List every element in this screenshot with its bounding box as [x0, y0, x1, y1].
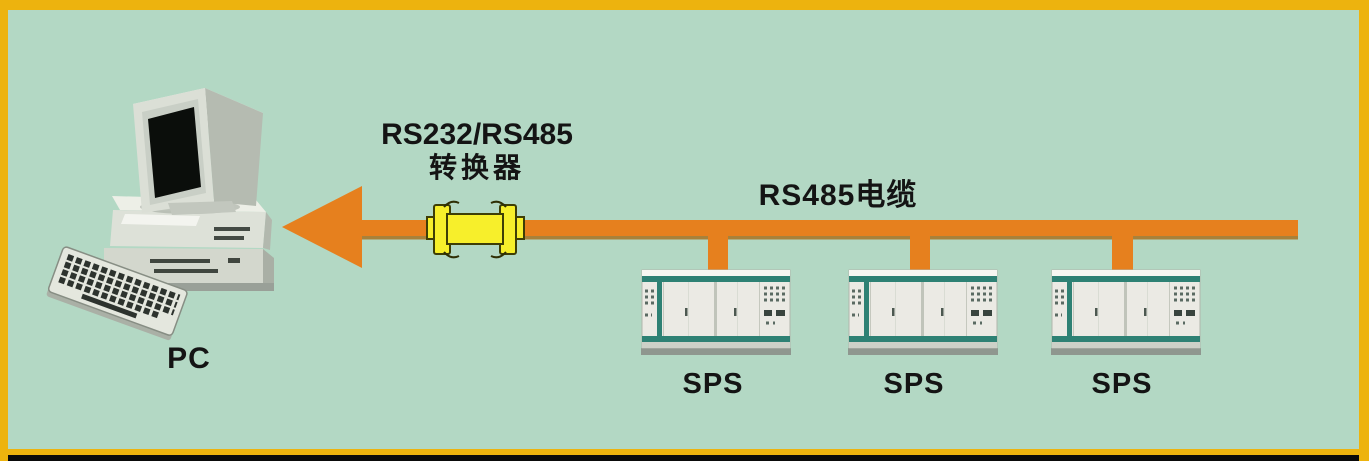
sps-cabinet-2 — [848, 270, 998, 355]
bus-arrow-head — [282, 186, 362, 268]
diagram-frame: RS232/RS485 转换器 RS485电缆 PC SPS SPS SPS — [0, 0, 1369, 461]
converter-label-line2: 转换器 — [352, 151, 602, 184]
pc-monitor-side — [205, 88, 263, 206]
bus-tap-3 — [1112, 228, 1133, 274]
sps-label-2: SPS — [854, 368, 974, 401]
pc-screen — [148, 107, 201, 198]
pc-label: PC — [139, 342, 239, 376]
pc-icon — [46, 88, 274, 341]
converter-label-line1: RS232/RS485 — [352, 118, 602, 151]
bus-cable-label: RS485电缆 — [688, 170, 988, 214]
sps-cabinet-1 — [641, 270, 791, 355]
sps-label-3: SPS — [1062, 368, 1182, 401]
sps-cabinet-3 — [1051, 270, 1201, 355]
converter-icon — [427, 202, 524, 258]
bus-tap-2 — [910, 228, 930, 274]
bus-tap-1 — [708, 228, 728, 274]
sps-label-1: SPS — [653, 368, 773, 401]
converter-label: RS232/RS485 转换器 — [352, 118, 602, 184]
